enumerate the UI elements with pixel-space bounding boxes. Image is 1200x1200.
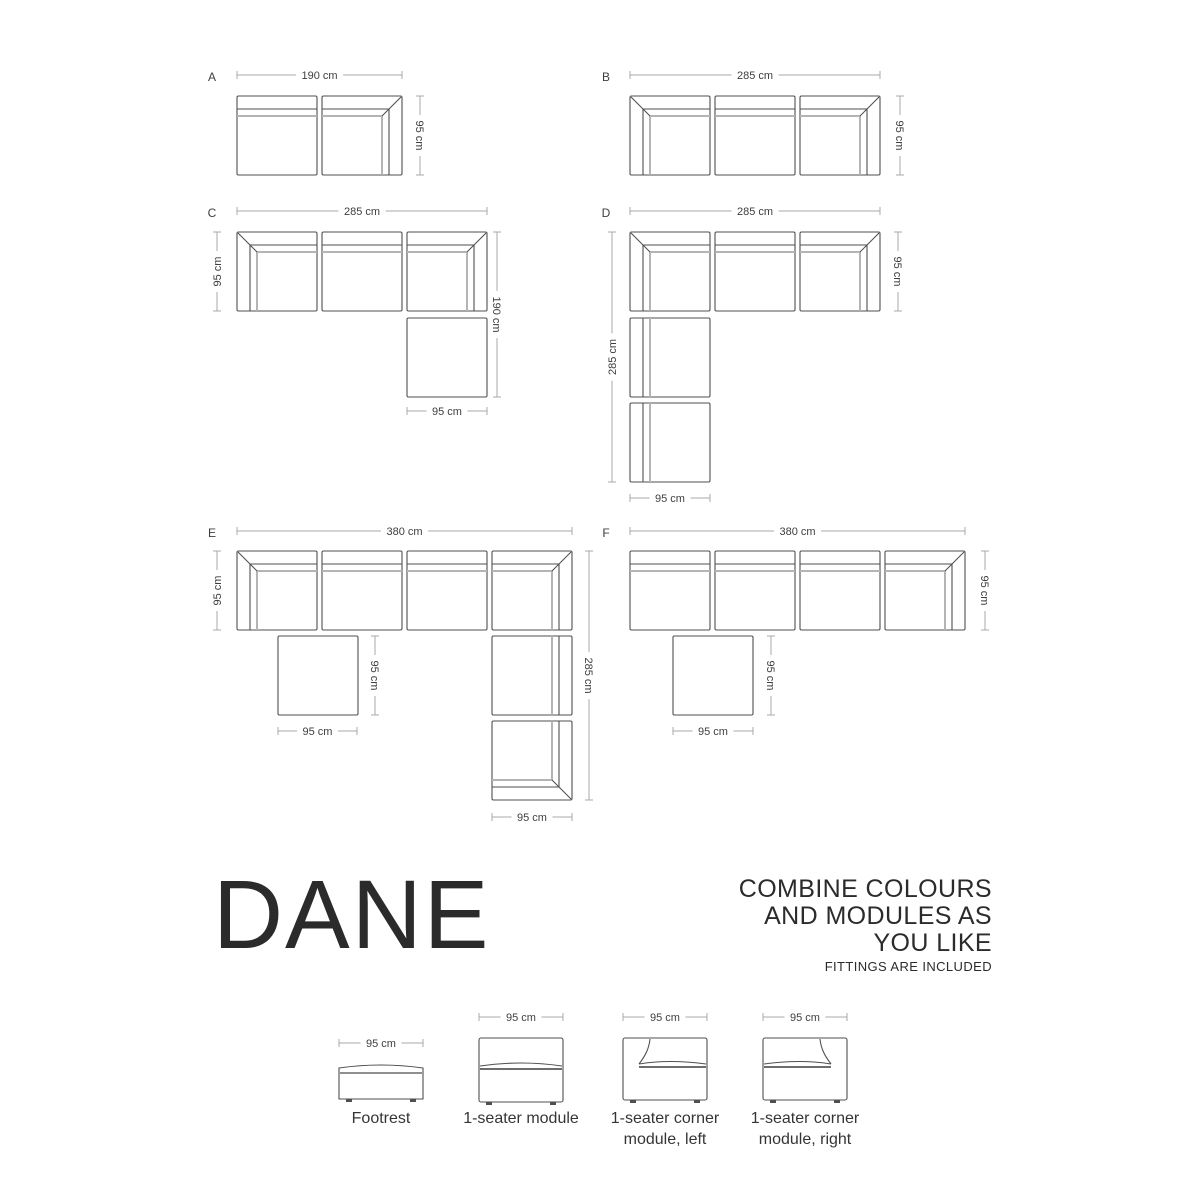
- configuration-letter: C: [208, 206, 217, 220]
- module-footrest: [673, 636, 753, 715]
- dimension-label: 285 cm: [344, 206, 380, 218]
- tagline: COMBINE COLOURS AND MODULES AS YOU LIKE: [572, 876, 992, 957]
- configuration-letter: E: [208, 526, 216, 540]
- module-1-seater: [800, 551, 880, 630]
- configuration-letter: B: [602, 70, 610, 84]
- dimension-label: 95 cm: [655, 493, 685, 505]
- dimension: 95 cm: [891, 232, 905, 311]
- module-1-seater: [322, 551, 402, 630]
- dimension-label: 285 cm: [737, 206, 773, 218]
- dimension-label: 95 cm: [366, 1038, 396, 1050]
- module-1-seater: [630, 551, 710, 630]
- dimension-label: 95 cm: [212, 257, 224, 287]
- dimension: 95 cm: [623, 1011, 707, 1025]
- dimension: 95 cm: [339, 1037, 423, 1051]
- dimension-label: 190 cm: [490, 296, 502, 332]
- dimension-label: 95 cm: [212, 576, 224, 606]
- product-sheet: A190 cm95 cmB285 cm95 cmC285 cm95 cm190 …: [0, 0, 1200, 1200]
- module-footrest: [407, 318, 487, 397]
- configuration-F: F380 cm95 cm95 cm95 cm: [602, 525, 991, 739]
- configuration-A: A190 cm95 cm: [208, 69, 427, 176]
- module-1-seater: [715, 96, 795, 175]
- dimension-label: 285 cm: [737, 70, 773, 82]
- dimension-label: 95 cm: [368, 661, 380, 691]
- tagline-note: FITTINGS ARE INCLUDED: [572, 959, 992, 974]
- dimension: 95 cm: [763, 1011, 847, 1025]
- dimension: 95 cm: [407, 405, 487, 419]
- dimension: 285 cm: [630, 205, 880, 219]
- module-corner-right: [407, 232, 487, 311]
- dimension-label: 95 cm: [517, 812, 547, 824]
- module-1-seater: [237, 96, 317, 175]
- module-1-seater: [322, 232, 402, 311]
- dimension: 95 cm: [413, 96, 427, 175]
- dimension-label: 285 cm: [582, 657, 594, 693]
- configuration-letter: A: [208, 70, 216, 84]
- dimension: 95 cm: [893, 96, 907, 175]
- module-corner-right: [322, 96, 402, 175]
- module-1-seater: [630, 318, 710, 397]
- dimension-label: 95 cm: [303, 726, 333, 738]
- module-corner-right: [492, 551, 572, 630]
- legend-seat-drawing: 95 cm: [479, 1011, 563, 1106]
- legend-footrest-drawing: 95 cm: [339, 1037, 423, 1103]
- configuration-letter: D: [602, 206, 611, 220]
- module-1-seater: [492, 636, 572, 715]
- configuration-D: D285 cm95 cm285 cm95 cm: [602, 205, 905, 506]
- configuration-C: C285 cm95 cm190 cm95 cm: [208, 205, 504, 419]
- dimension-label: 95 cm: [506, 1012, 536, 1024]
- dimension-label: 95 cm: [764, 661, 776, 691]
- dimension-label: 95 cm: [650, 1012, 680, 1024]
- dimension: 95 cm: [492, 811, 572, 825]
- dimension: 95 cm: [630, 492, 710, 506]
- dimension: 95 cm: [211, 232, 225, 311]
- module-corner-right: [800, 232, 880, 311]
- dimension: 285 cm: [630, 69, 880, 83]
- module-corner-left: [237, 551, 317, 630]
- module-corner: [492, 721, 572, 800]
- dimension-label: 95 cm: [698, 726, 728, 738]
- dimension: 285 cm: [606, 232, 620, 482]
- dimension-label: 380 cm: [779, 526, 815, 538]
- dimension: 95 cm: [673, 725, 753, 739]
- configuration-letter: F: [602, 526, 609, 540]
- module-corner-left: [630, 232, 710, 311]
- dimension-label: 190 cm: [301, 70, 337, 82]
- module-corner-right: [800, 96, 880, 175]
- configuration-B: B285 cm95 cm: [602, 69, 907, 176]
- dimension: 95 cm: [368, 636, 382, 715]
- module-corner-left: [237, 232, 317, 311]
- dimension-label: 95 cm: [413, 121, 425, 151]
- module-1-seater: [715, 232, 795, 311]
- modular-sofa-diagram: A190 cm95 cmB285 cm95 cmC285 cm95 cm190 …: [0, 0, 1200, 1200]
- legend-corner-right-drawing: 95 cm: [763, 1011, 847, 1104]
- dimension: 95 cm: [978, 551, 992, 630]
- product-title: DANE: [213, 866, 491, 963]
- dimension: 380 cm: [237, 525, 572, 539]
- dimension-label: 95 cm: [432, 406, 462, 418]
- module-footrest: [278, 636, 358, 715]
- module-1-seater: [715, 551, 795, 630]
- module-1-seater: [407, 551, 487, 630]
- dimension-label: 380 cm: [386, 526, 422, 538]
- dimension-label: 95 cm: [893, 121, 905, 151]
- dimension: 285 cm: [582, 551, 596, 800]
- configuration-E: E380 cm95 cm95 cm95 cm285 cm95 cm: [208, 525, 596, 825]
- dimension-label: 95 cm: [790, 1012, 820, 1024]
- dimension: 95 cm: [278, 725, 357, 739]
- dimension: 190 cm: [237, 69, 402, 83]
- dimension: 190 cm: [490, 232, 504, 397]
- module-1-seater: [630, 403, 710, 482]
- dimension: 95 cm: [764, 636, 778, 715]
- dimension: 285 cm: [237, 205, 487, 219]
- module-corner-left: [630, 96, 710, 175]
- module-corner-right: [885, 551, 965, 630]
- dimension: 380 cm: [630, 525, 965, 539]
- legend-label-corner-right: 1-seater corner module, right: [705, 1108, 905, 1150]
- dimension-label: 285 cm: [607, 339, 619, 375]
- dimension-label: 95 cm: [891, 257, 903, 287]
- dimension: 95 cm: [479, 1011, 563, 1025]
- legend-corner-left-drawing: 95 cm: [623, 1011, 707, 1104]
- dimension-label: 95 cm: [978, 576, 990, 606]
- dimension: 95 cm: [211, 551, 225, 630]
